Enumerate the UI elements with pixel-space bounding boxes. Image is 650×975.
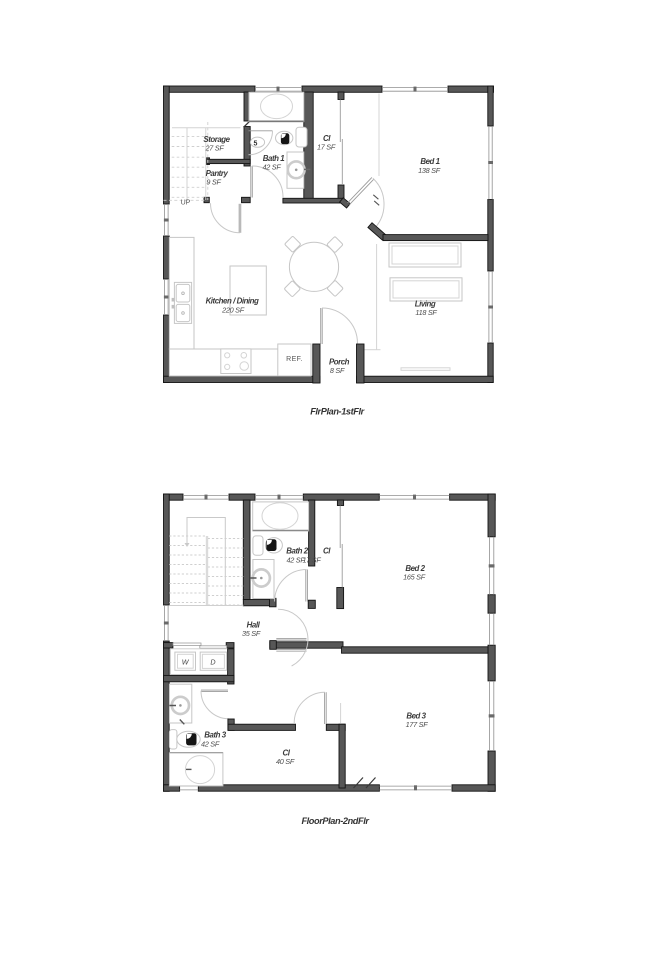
svg-text:REF.: REF. <box>286 356 303 363</box>
svg-text:118 SF: 118 SF <box>415 308 437 317</box>
svg-text:17 SF: 17 SF <box>303 556 322 565</box>
svg-text:FloorPlan-2ndFlr: FloorPlan-2ndFlr <box>301 816 369 826</box>
svg-text:D: D <box>210 658 215 667</box>
svg-text:177 SF: 177 SF <box>406 720 429 729</box>
svg-text:5: 5 <box>254 141 258 148</box>
svg-text:UP: UP <box>181 200 191 207</box>
svg-text:42 SF: 42 SF <box>201 740 220 749</box>
svg-text:Bath 2: Bath 2 <box>286 547 308 556</box>
svg-text:35 SF: 35 SF <box>242 629 261 638</box>
svg-text:8 SF: 8 SF <box>330 366 345 375</box>
svg-text:17 SF: 17 SF <box>317 143 336 152</box>
svg-text:Bed 1: Bed 1 <box>420 157 439 166</box>
svg-text:40 SF: 40 SF <box>276 757 295 766</box>
svg-text:42 SF: 42 SF <box>263 163 282 172</box>
svg-text:220 SF: 220 SF <box>221 306 245 315</box>
svg-text:9 SF: 9 SF <box>206 178 221 187</box>
svg-text:165 SF: 165 SF <box>403 573 426 582</box>
svg-text:138 SF: 138 SF <box>418 166 441 175</box>
svg-text:Kitchen / Dining: Kitchen / Dining <box>206 297 259 306</box>
svg-text:27 SF: 27 SF <box>205 144 225 153</box>
svg-text:FlrPlan-1stFlr: FlrPlan-1stFlr <box>310 407 364 417</box>
svg-text:W: W <box>182 658 190 667</box>
svg-text:Bath 3: Bath 3 <box>204 731 226 740</box>
